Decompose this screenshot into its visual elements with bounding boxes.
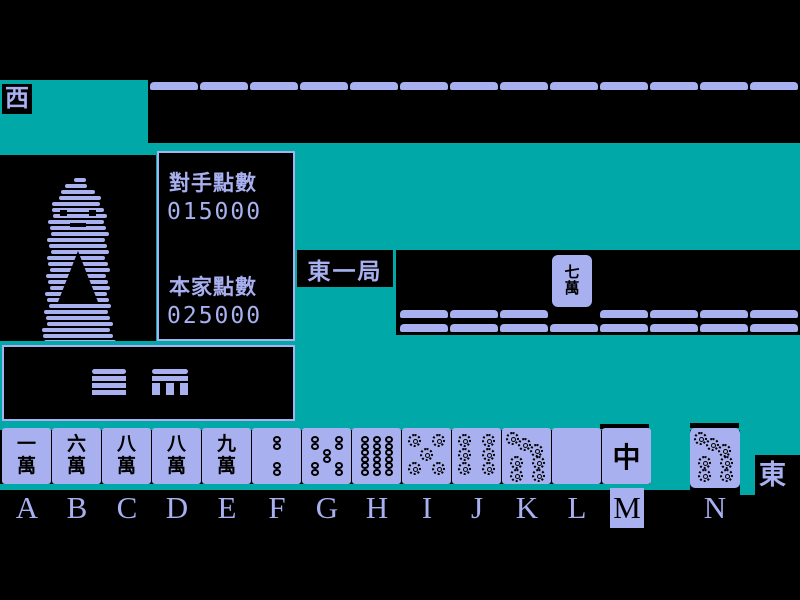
tile-character-bottom: 萬 <box>117 456 136 478</box>
wall-tile-back <box>150 82 198 90</box>
tile-character: 中 <box>602 428 651 484</box>
wall-tile-back <box>600 324 648 332</box>
tile-character-top: 六 <box>67 434 86 456</box>
bamboo-stick-icon <box>311 462 319 476</box>
tile-character-top: 九 <box>217 434 236 456</box>
pin-dot-icon <box>720 469 733 482</box>
pin-dot-icon <box>482 462 495 475</box>
pin-dot-icon <box>408 462 421 475</box>
tile-letter-M-selected: M <box>610 488 644 528</box>
hand-tile-K[interactable] <box>502 428 551 484</box>
tile-character-top: 八 <box>117 434 136 456</box>
hand-tile-J[interactable] <box>452 428 501 484</box>
pin-dot-icon <box>510 456 523 469</box>
wall-tile-back <box>400 310 448 318</box>
hand-tile-F[interactable] <box>252 428 301 484</box>
hand-tile-I[interactable] <box>402 428 451 484</box>
opponent-discard-tile: 七萬 <box>552 255 592 307</box>
wall-tile-back <box>650 82 698 90</box>
tile-letter-E: E <box>210 488 244 528</box>
bamboo-stick-icon <box>385 449 393 463</box>
bamboo-stick-icon <box>273 462 281 476</box>
tile-letter-D: D <box>160 488 194 528</box>
pin-dot-icon <box>530 444 543 457</box>
bamboo-stick-icon <box>361 436 369 450</box>
bamboo-stick-icon <box>273 436 281 450</box>
west-wind-label: 西 <box>5 85 29 112</box>
bamboo-stick-icon <box>335 436 343 450</box>
wall-tile-back <box>750 310 798 318</box>
west-wind-box: 西 <box>2 84 32 114</box>
bamboo-stick-icon <box>385 436 393 450</box>
tile-letter-J: J <box>460 488 494 528</box>
bamboo-stick-icon <box>373 436 381 450</box>
bamboo-stick-icon <box>385 462 393 476</box>
hand-tile-H[interactable] <box>352 428 401 484</box>
pin-dot-icon <box>432 462 445 475</box>
pin-dot-icon <box>432 434 445 447</box>
pin-dot-icon <box>420 448 433 461</box>
tile-letter-G: G <box>310 488 344 528</box>
tile-character-top: 一 <box>17 434 36 456</box>
table-felt-top-of-east <box>755 425 800 455</box>
wall-tile-back <box>500 310 548 318</box>
game-screen: 西 對手點數 015000 本家點數 025000 東一局 七萬 <box>0 0 800 600</box>
hand-tile-B[interactable]: 六萬 <box>52 428 101 484</box>
tile-letter-H: H <box>360 488 394 528</box>
pin-dot-icon <box>532 456 545 469</box>
opponent-score-label: 對手點數 <box>169 167 257 197</box>
wall-tile-back <box>600 310 648 318</box>
wall-tile-back <box>650 310 698 318</box>
tile-letter-A: A <box>10 488 44 528</box>
bamboo-stick-icon <box>373 462 381 476</box>
wall-tile-back <box>450 324 498 332</box>
opponent-wall-row <box>150 82 800 91</box>
wall-tile-back <box>350 82 398 90</box>
self-score-value: 025000 <box>167 303 262 329</box>
pin-dot-icon <box>720 456 733 469</box>
tile-letter-F: F <box>260 488 294 528</box>
wall-tile-back <box>450 82 498 90</box>
tile-letter-N: N <box>698 488 732 528</box>
pin-dot-icon <box>718 444 731 457</box>
tile-character-bottom: 萬 <box>217 456 236 478</box>
hand-tile-D[interactable]: 八萬 <box>152 428 201 484</box>
hand-tile-A[interactable]: 一萬 <box>2 428 51 484</box>
drawn-tile[interactable] <box>690 428 740 488</box>
wall-tile-back <box>700 310 748 318</box>
east-wind-label: 東 <box>759 455 786 495</box>
wall-tile-back <box>750 324 798 332</box>
opponent-discard-tile-label: 七萬 <box>564 265 580 298</box>
opponent-figure-graphic <box>0 155 156 341</box>
wall-tile-back <box>400 82 448 90</box>
tile-letter-B: B <box>60 488 94 528</box>
wall-tile-back <box>400 324 448 332</box>
wall-tile-back <box>450 310 498 318</box>
pin-dot-icon <box>458 462 471 475</box>
table-felt-right-of-drawn <box>740 425 755 495</box>
discard-river-panel <box>396 250 800 335</box>
wall-tile-back <box>750 82 798 90</box>
pin-dot-icon <box>510 469 523 482</box>
hand-tile-C[interactable]: 八萬 <box>102 428 151 484</box>
hand-tile-L[interactable] <box>552 428 601 484</box>
wall-tile-back <box>500 82 548 90</box>
bamboo-stick-icon <box>373 449 381 463</box>
score-panel: 對手點數 015000 本家點數 025000 <box>157 151 295 341</box>
tile-character-top: 八 <box>167 434 186 456</box>
pin-dot-icon <box>532 469 545 482</box>
bamboo-stick-icon <box>335 462 343 476</box>
self-score-label: 本家點數 <box>169 271 257 301</box>
bamboo-stick-icon <box>311 436 319 450</box>
wall-tile-back <box>500 324 548 332</box>
tile-letter-I: I <box>410 488 444 528</box>
bamboo-stick-icon <box>361 462 369 476</box>
hand-tile-G[interactable] <box>302 428 351 484</box>
pin-dot-icon <box>458 434 471 447</box>
wall-tile-back <box>700 324 748 332</box>
pin-dot-icon <box>408 434 421 447</box>
wall-stack-panel <box>2 345 295 421</box>
hand-tile-M[interactable]: 中 <box>602 428 651 484</box>
wall-tile-back <box>550 324 598 332</box>
tile-letter-C: C <box>110 488 144 528</box>
wall-tile-back <box>200 82 248 90</box>
bamboo-stick-icon <box>323 449 331 463</box>
pin-dot-icon <box>482 448 495 461</box>
round-indicator-box: 東一局 <box>297 250 393 287</box>
tile-character-bottom: 萬 <box>17 456 36 478</box>
wall-tile-back <box>700 82 748 90</box>
pin-dot-icon <box>458 448 471 461</box>
east-wind-box: 東 <box>755 455 800 595</box>
pin-dot-icon <box>698 456 711 469</box>
wall-tile-back <box>550 82 598 90</box>
bamboo-stick-icon <box>361 449 369 463</box>
pin-dot-icon <box>482 434 495 447</box>
tile-letter-L: L <box>560 488 594 528</box>
tile-character-bottom: 萬 <box>167 456 186 478</box>
wall-tile-back <box>300 82 348 90</box>
pin-dot-icon <box>698 469 711 482</box>
hand-tile-E[interactable]: 九萬 <box>202 428 251 484</box>
opponent-score-value: 015000 <box>167 199 262 225</box>
wall-tile-back <box>250 82 298 90</box>
tile-character-bottom: 萬 <box>67 456 86 478</box>
wall-tile-back <box>600 82 648 90</box>
round-indicator-label: 東一局 <box>308 252 383 286</box>
table-felt-gap-left-of-drawn <box>650 425 690 490</box>
tile-letter-K: K <box>510 488 544 528</box>
wall-tile-back <box>650 324 698 332</box>
